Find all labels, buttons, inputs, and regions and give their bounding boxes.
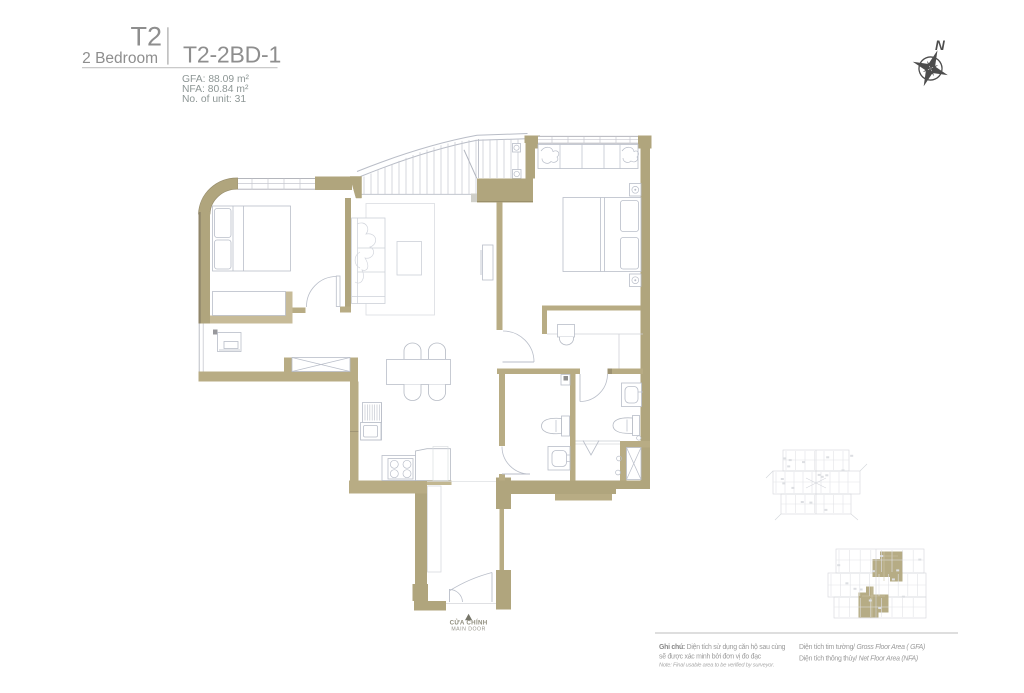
svg-text:Diện tích tim tường/ Gross Flo: Diện tích tim tường/ Gross Floor Area ( … [799, 644, 925, 651]
svg-text:CỬA CHÍNH: CỬA CHÍNH [450, 619, 488, 627]
svg-text:N: N [935, 38, 945, 53]
svg-text:T2: T2 [130, 22, 162, 52]
svg-text:No. of unit: 31: No. of unit: 31 [182, 94, 246, 105]
svg-text:2 Bedroom: 2 Bedroom [82, 50, 158, 67]
svg-text:Diện tích thông thủy/ Net Floo: Diện tích thông thủy/ Net Floor Area (NF… [799, 655, 918, 663]
svg-text:sẽ được xác minh bởi đơn vị đo: sẽ được xác minh bởi đơn vị đo đạc [659, 653, 762, 661]
svg-text:Note: Final usable area to be: Note: Final usable area to be verified b… [659, 663, 774, 669]
svg-text:T2-2BD-1: T2-2BD-1 [183, 42, 281, 68]
svg-text:MAIN DOOR: MAIN DOOR [451, 627, 485, 633]
svg-text:Ghi chú: Diện tích sử dụng căn: Ghi chú: Diện tích sử dụng căn hộ sau cù… [659, 643, 786, 651]
